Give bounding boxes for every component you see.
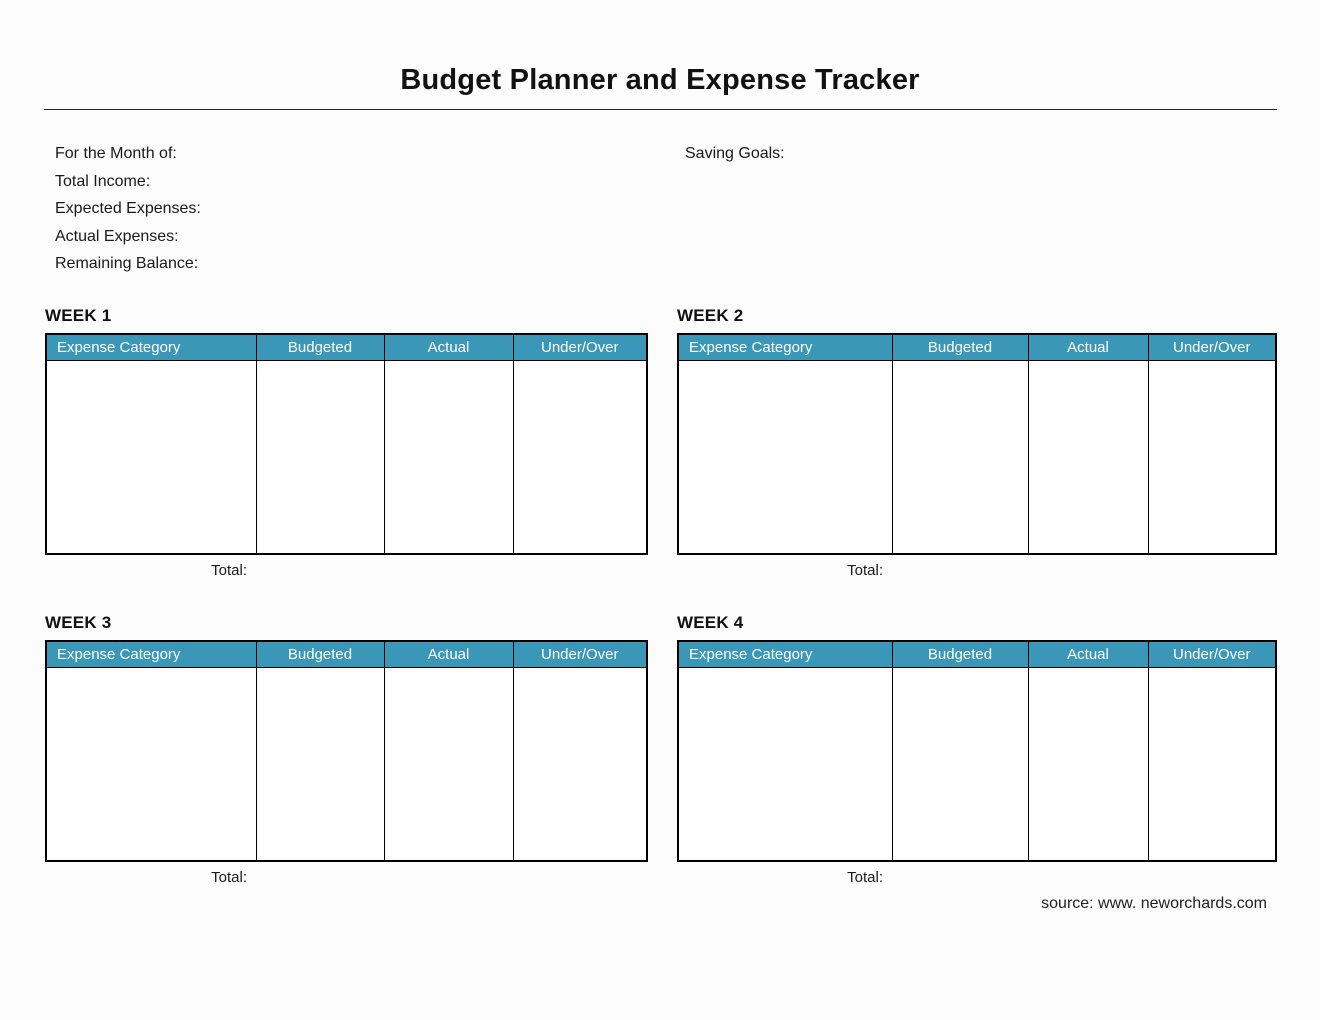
actual-cell[interactable] [384, 667, 513, 861]
week-1-heading: WEEK 1 [45, 306, 646, 326]
week-4-heading: WEEK 4 [677, 613, 1275, 633]
week-4-table: Expense Category Budgeted Actual Under/O… [677, 640, 1277, 862]
col-header-budgeted: Budgeted [892, 334, 1028, 360]
source-credit: source: www. neworchards.com [1041, 895, 1267, 913]
week-2-section: WEEK 2 Expense Category Budgeted Actual … [677, 306, 1275, 579]
col-header-expense-category: Expense Category [46, 334, 256, 360]
col-header-actual: Actual [384, 641, 513, 667]
table-row [678, 360, 1276, 554]
week-3-table: Expense Category Budgeted Actual Under/O… [45, 640, 648, 862]
table-row [46, 360, 647, 554]
actual-cell[interactable] [384, 360, 513, 554]
week-3-heading: WEEK 3 [45, 613, 646, 633]
field-label-saving-goals: Saving Goals: [685, 140, 785, 168]
table-row [46, 667, 647, 861]
budgeted-cell[interactable] [256, 667, 384, 861]
page-title: Budget Planner and Expense Tracker [0, 64, 1320, 97]
week-4-total-label: Total: [677, 869, 891, 886]
field-label-total-income: Total Income: [55, 168, 201, 196]
field-label-month: For the Month of: [55, 140, 201, 168]
week-1-section: WEEK 1 Expense Category Budgeted Actual … [45, 306, 646, 579]
week-3-section: WEEK 3 Expense Category Budgeted Actual … [45, 613, 646, 886]
table-header-row: Expense Category Budgeted Actual Under/O… [678, 334, 1276, 360]
summary-fields: For the Month of: Total Income: Expected… [55, 140, 201, 278]
table-header-row: Expense Category Budgeted Actual Under/O… [678, 641, 1276, 667]
expense-category-cell[interactable] [46, 360, 256, 554]
col-header-budgeted: Budgeted [256, 641, 384, 667]
budgeted-cell[interactable] [256, 360, 384, 554]
col-header-expense-category: Expense Category [678, 334, 892, 360]
week-4-section: WEEK 4 Expense Category Budgeted Actual … [677, 613, 1275, 886]
expense-category-cell[interactable] [678, 360, 892, 554]
budgeted-cell[interactable] [892, 360, 1028, 554]
budget-planner-page: Budget Planner and Expense Tracker For t… [0, 0, 1320, 1020]
col-header-budgeted: Budgeted [256, 334, 384, 360]
col-header-expense-category: Expense Category [46, 641, 256, 667]
table-header-row: Expense Category Budgeted Actual Under/O… [46, 334, 647, 360]
week-2-heading: WEEK 2 [677, 306, 1275, 326]
under-over-cell[interactable] [513, 667, 647, 861]
col-header-under-over: Under/Over [1148, 334, 1276, 360]
col-header-under-over: Under/Over [513, 334, 647, 360]
expense-category-cell[interactable] [46, 667, 256, 861]
col-header-expense-category: Expense Category [678, 641, 892, 667]
table-header-row: Expense Category Budgeted Actual Under/O… [46, 641, 647, 667]
week-1-total-label: Total: [45, 562, 255, 579]
week-1-table: Expense Category Budgeted Actual Under/O… [45, 333, 648, 555]
week-3-total-label: Total: [45, 869, 255, 886]
expense-category-cell[interactable] [678, 667, 892, 861]
under-over-cell[interactable] [1148, 360, 1276, 554]
field-label-remaining-balance: Remaining Balance: [55, 250, 201, 278]
title-divider [44, 109, 1277, 110]
col-header-actual: Actual [384, 334, 513, 360]
field-label-expected-expenses: Expected Expenses: [55, 195, 201, 223]
week-2-total-label: Total: [677, 562, 891, 579]
col-header-actual: Actual [1028, 641, 1148, 667]
field-label-actual-expenses: Actual Expenses: [55, 223, 201, 251]
col-header-budgeted: Budgeted [892, 641, 1028, 667]
col-header-under-over: Under/Over [1148, 641, 1276, 667]
budgeted-cell[interactable] [892, 667, 1028, 861]
actual-cell[interactable] [1028, 667, 1148, 861]
week-2-table: Expense Category Budgeted Actual Under/O… [677, 333, 1277, 555]
actual-cell[interactable] [1028, 360, 1148, 554]
table-row [678, 667, 1276, 861]
under-over-cell[interactable] [1148, 667, 1276, 861]
col-header-under-over: Under/Over [513, 641, 647, 667]
under-over-cell[interactable] [513, 360, 647, 554]
col-header-actual: Actual [1028, 334, 1148, 360]
